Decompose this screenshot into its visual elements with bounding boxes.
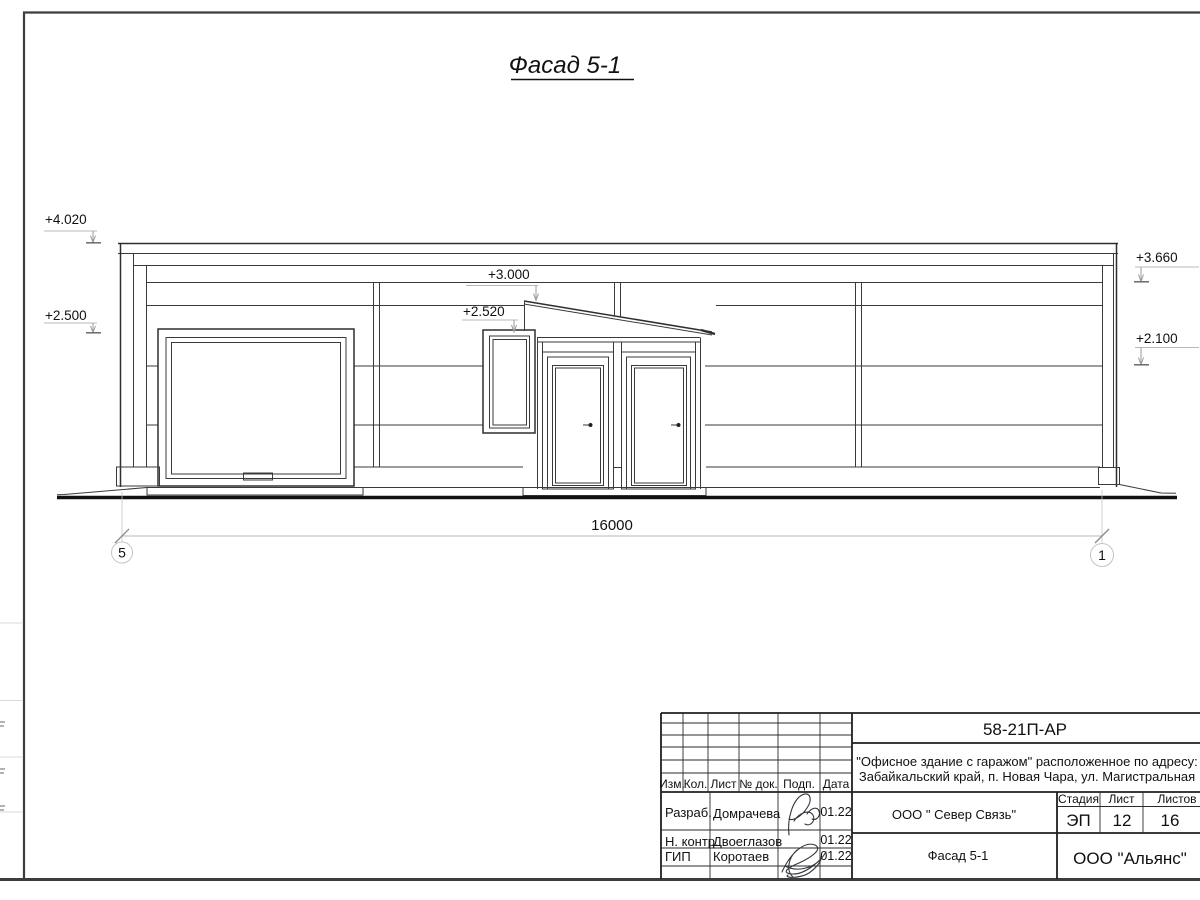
drawing-sheet: { "drawing_title": "Фасад 5-1", "facade"…	[0, 0, 1200, 900]
canopy-slope-bottom	[524, 304, 712, 335]
col-list: Лист	[710, 777, 737, 791]
elevation-value: +3.660	[1136, 250, 1178, 265]
elevation-mark-2100: +2.100	[1134, 331, 1199, 365]
col-kol: Кол.	[684, 777, 708, 791]
window-frame-inner	[490, 336, 530, 428]
signature-row-control: Н. контр. Двоеглазов 01.22	[665, 833, 852, 849]
plinth-and-ground	[57, 467, 1177, 498]
col-podp: Подп.	[783, 777, 815, 791]
facade-drawing	[57, 244, 1177, 498]
door-frame	[543, 352, 614, 489]
elevation-mark-2520: +2.520	[462, 304, 518, 332]
elevation-mark-3660: +3.660	[1134, 250, 1199, 282]
elevation-mark-3000: +3.000	[466, 267, 539, 301]
door-frame-inner	[627, 357, 691, 489]
door-frame	[622, 352, 696, 489]
axis-marker-1: 1	[1091, 544, 1114, 567]
sheets-total: 16	[1161, 811, 1180, 830]
person-name: Двоеглазов	[713, 834, 782, 849]
door-handle-knob	[589, 423, 593, 427]
left-apron-slope	[57, 488, 147, 495]
stage-value: ЭП	[1066, 811, 1090, 830]
door-frame-inner	[548, 357, 609, 489]
dimension-and-axes: 16000 5 1	[112, 490, 1114, 567]
document-code: 58-21П-АР	[983, 720, 1067, 739]
garage-door	[158, 329, 354, 486]
garage-threshold-slab	[147, 488, 363, 496]
elevation-mark-2500: +2.500	[44, 308, 101, 333]
left-pilaster-base	[117, 467, 160, 486]
garage-door-leaf	[172, 343, 341, 475]
title-block: Изм. Кол. Лист № док. Подп. Дата 58-21П-…	[659, 713, 1200, 879]
door-leaf-inner	[556, 368, 601, 483]
entry-door-left	[543, 352, 614, 489]
sign-date: 01.22	[820, 805, 851, 819]
sheets-header: Листов	[1158, 792, 1197, 806]
role-label: Разраб.	[665, 805, 712, 820]
sign-date: 01.22	[820, 833, 851, 847]
elevation-value: +4.020	[45, 212, 87, 227]
dimension-value: 16000	[591, 517, 633, 534]
organization-name: ООО "Альянс"	[1073, 849, 1187, 868]
drawing-title-text: Фасад 5-1	[509, 52, 621, 79]
signature-row-developer: Разраб. Домрачева 01.22	[665, 805, 852, 821]
role-label: Н. контр.	[665, 834, 719, 849]
stage-header: Стадия	[1058, 792, 1099, 806]
signature-row-gip: ГИП Коротаев 01.22	[665, 849, 852, 864]
sheet-header: Лист	[1108, 792, 1135, 806]
facade-sheet-canvas: Фасад 5-1	[0, 0, 1200, 900]
window-glass	[493, 340, 527, 426]
entrance-canopy	[524, 301, 715, 335]
entry-door-right	[622, 352, 696, 489]
project-address-line1: "Офисное здание с гаражом" расположенное…	[856, 754, 1197, 769]
door-handle-knob	[677, 423, 681, 427]
right-apron-slope	[1120, 485, 1177, 494]
role-label: ГИП	[665, 849, 691, 864]
project-address-line2: Забайкальский край, п. Новая Чара, ул. М…	[859, 769, 1195, 784]
window-frame	[483, 330, 535, 433]
garage-door-frame	[158, 329, 354, 486]
elevation-value: +2.500	[45, 308, 87, 323]
col-izm: Изм.	[659, 777, 685, 791]
sheet-number: 12	[1113, 811, 1132, 830]
canopy-slope-top	[524, 301, 712, 332]
elevation-value: +2.100	[1136, 331, 1178, 346]
elevation-mark-4020: +4.020	[44, 212, 101, 243]
siding-lines	[133, 266, 1113, 488]
person-name: Коротаев	[713, 849, 769, 864]
stage-sheet-block: Стадия Лист Листов ЭП 12 16	[1058, 792, 1196, 830]
left-margin-artifacts	[0, 623, 22, 812]
axis-marker-5: 5	[112, 542, 133, 563]
axis-number: 5	[118, 545, 126, 561]
left-corner-pilaster	[121, 244, 147, 488]
elevation-value: +2.520	[463, 304, 505, 319]
panel-joints	[374, 283, 862, 468]
elevation-value: +3.000	[488, 267, 530, 282]
title-block-header-row: Изм. Кол. Лист № док. Подп. Дата	[659, 777, 849, 791]
col-doc: № док.	[739, 777, 777, 791]
signature-scribble-developer	[789, 794, 820, 835]
garage-door-frame-inner	[166, 338, 346, 479]
axis-number: 1	[1098, 547, 1106, 563]
entrance-porch	[523, 338, 706, 496]
person-name: Домрачева	[713, 806, 781, 821]
contractor-name: ООО " Север Связь"	[892, 807, 1017, 822]
col-data: Дата	[823, 777, 850, 791]
right-corner-pilaster	[1103, 244, 1117, 488]
drawing-title: Фасад 5-1	[509, 52, 634, 80]
sheet-title: Фасад 5-1	[928, 848, 989, 863]
window	[483, 330, 535, 433]
door-leaf	[553, 366, 604, 486]
sign-date: 01.22	[820, 849, 851, 863]
